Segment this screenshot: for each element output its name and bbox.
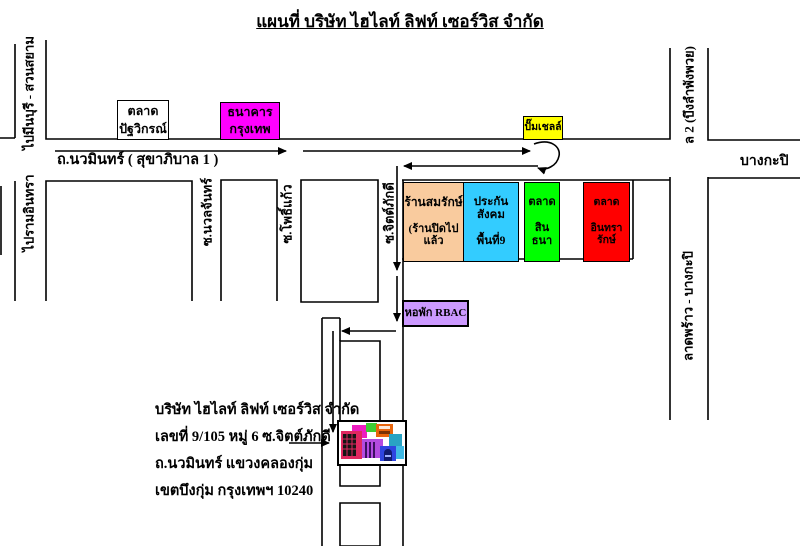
company-name-line: บริษัท ไฮไลท์ ลิฟท์ เซอร์วิส จำกัด <box>155 397 359 424</box>
landmark-shell-station: ปั๊มเชลล์ <box>523 116 563 140</box>
road-label-min-buri: ไปมีนบุรี - สวนสยาม <box>19 36 40 150</box>
landmark-label: ตลาด <box>528 196 555 209</box>
road-label-lat-phrao: ลาดพร้าว - บางกะปิ <box>678 251 699 361</box>
road-label-soi-pho-kaeo: ซ.โพธิ์แก้ว <box>277 184 298 243</box>
company-address-line: เขตบึงกุ่ม กรุงเทพฯ 10240 <box>155 478 359 505</box>
road-label-navamin: ถ.นวมินทร์ ( สุขาภิบาล 1 ) <box>57 148 218 171</box>
landmark-intharaluck-market: ตลาด อินทรารักษ์ <box>583 182 630 262</box>
landmark-label: อินทรารักษ์ <box>584 223 629 247</box>
landmark-label: (ร้านปิดไปแล้ว <box>404 223 463 248</box>
company-address: บริษัท ไฮไลท์ ลิฟท์ เซอร์วิส จำกัด เลขที… <box>155 397 359 505</box>
landmark-label: พื้นที่9 <box>477 235 506 248</box>
landmark-label: ประกันสังคม <box>464 196 518 222</box>
landmark-label: ร้านสมรักษ์ <box>404 196 462 210</box>
landmark-label: กรุงเทพ <box>229 122 270 136</box>
landmark-label: ตลาด <box>128 104 159 118</box>
landmark-somrak-shop: ร้านสมรักษ์ (ร้านปิดไปแล้ว <box>403 182 464 262</box>
landmark-label: ตลาด <box>594 197 620 209</box>
landmark-label: ปั๊มเชลล์ <box>524 122 561 134</box>
landmark-sinthana-market: ตลาด สินธนา <box>524 182 560 262</box>
landmark-label: ปัฐวิกรณ์ <box>119 122 167 136</box>
company-address-line: เลขที่ 9/105 หมู่ 6 ซ.จิตต์ภักดี <box>155 424 359 451</box>
road-label-soi-nuan-chan: ซ.นวลจันทร์ <box>197 178 218 246</box>
landmark-social-security-area9: ประกันสังคม พื้นที่9 <box>463 182 519 262</box>
road-label-ram-intra: ไปรามอินทรา <box>19 174 40 251</box>
landmark-label: สินธนา <box>525 222 559 247</box>
company-address-line: ถ.นวมินทร์ แขวงคลองกุ่ม <box>155 451 359 478</box>
landmark-patwikorn-market: ตลาด ปัฐวิกรณ์ <box>117 100 169 140</box>
landmark-bangkok-bank: ธนาคาร กรุงเทพ <box>220 102 280 140</box>
road-label-soi-chit-phakdi: ซ.จิตต์ภักดี <box>379 182 400 243</box>
road-label-bueng-lam-phang-phuai: ล 2 (บึงลำพังพวย) <box>679 46 700 144</box>
u-turn-icon <box>534 142 559 169</box>
map-title: แผนที่ บริษัท ไฮไลท์ ลิฟท์ เซอร์วิส จำกั… <box>0 8 800 35</box>
directions-map: แผนที่ บริษัท ไฮไลท์ ลิฟท์ เซอร์วิส จำกั… <box>0 0 800 546</box>
landmark-rbac-dorm: หอพัก RBAC <box>402 300 469 327</box>
landmark-label: หอพัก RBAC <box>405 307 467 320</box>
road-label-bang-kapi: บางกะปิ <box>740 150 788 172</box>
landmark-label: ธนาคาร <box>227 105 272 119</box>
